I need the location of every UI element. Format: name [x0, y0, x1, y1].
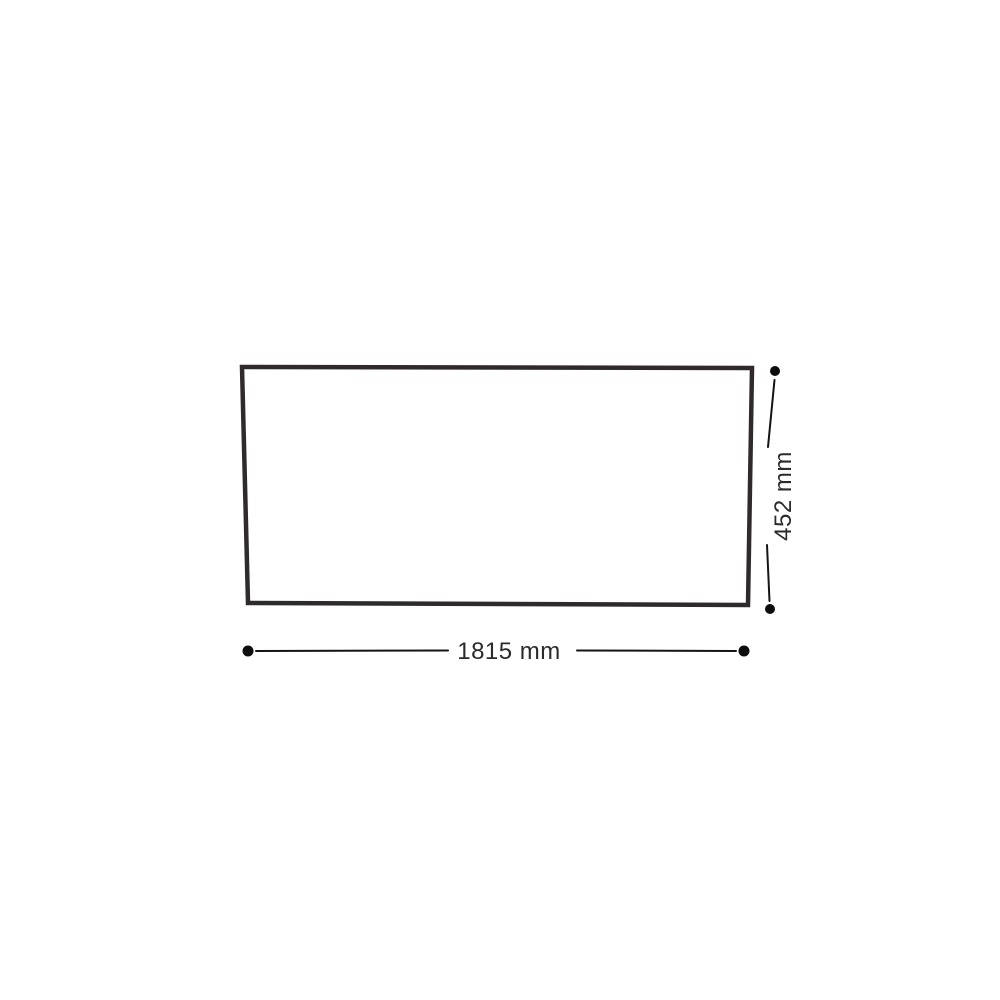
height-dim-lower-line	[767, 545, 770, 601]
width-dim-left-line	[256, 651, 448, 652]
height-dim-bottom-endpoint-dot	[765, 604, 775, 614]
height-dim-upper-line	[768, 380, 775, 447]
width-dim-right-line	[577, 651, 736, 652]
frame-outline	[242, 367, 752, 605]
dimension-drawing-canvas: 452 mm 1815 mm	[0, 0, 1000, 1000]
height-dim-top-endpoint-dot	[770, 366, 780, 376]
width-dim-left-endpoint-dot	[243, 646, 254, 657]
width-dimension: 1815 mm	[243, 638, 750, 665]
dimension-drawing: 452 mm 1815 mm	[0, 0, 1000, 1000]
width-dim-right-endpoint-dot	[739, 646, 750, 657]
height-dim-label: 452 mm	[770, 451, 797, 541]
width-dim-label: 1815 mm	[457, 638, 561, 665]
height-dimension: 452 mm	[765, 366, 797, 614]
